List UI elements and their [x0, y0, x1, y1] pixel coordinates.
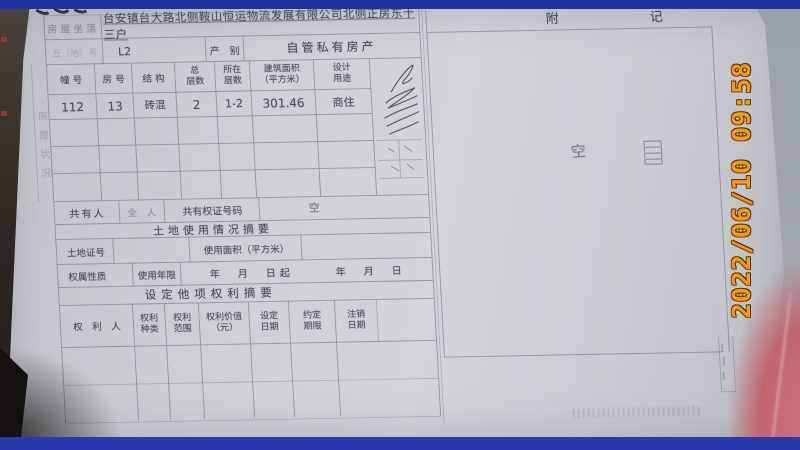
rights-header-cancel-date: 注销 日期	[334, 301, 378, 340]
col-header-room-no: 房 号	[94, 64, 133, 93]
land-area-label: 使用面积（平方米）	[191, 237, 302, 260]
notes-handwritten-mark: 空	[565, 138, 591, 164]
col-header-located-floor: 所在 层数	[214, 62, 251, 91]
camera-photo-frame: 房屋坐落 台安镇台大路北侧鞍山恒运物流发展有限公司北侧正房东十三户 丘（地）号 …	[0, 0, 800, 450]
box-doodle	[644, 141, 662, 164]
coowner-cert-value: 空	[297, 197, 332, 218]
property-category-label: 产 别	[205, 38, 244, 61]
coowner-middle-text: 全 人	[119, 202, 165, 222]
land-cert-label: 土地证号	[58, 241, 114, 263]
land-term-label: 使用年限	[132, 264, 181, 284]
handwriting-scribble	[382, 65, 421, 134]
location-label: 房屋坐落	[46, 16, 101, 39]
col-header-designed-use: 设计 用途	[313, 60, 371, 89]
rights-header-set-date: 设定 日期	[248, 303, 290, 342]
rights-header-type: 权利 种类	[132, 306, 166, 345]
floor-area-value: 301.46	[251, 91, 316, 115]
property-category-value: 自管私有房产	[245, 34, 418, 60]
camera-timestamp: 2022/06/10 09:58	[726, 59, 756, 321]
plot-number-value: L2	[104, 40, 145, 63]
rights-header-agreed-term: 约定 期限	[288, 302, 336, 341]
designed-use-value: 商住	[315, 90, 372, 114]
located-floor-value: 1-2	[216, 92, 252, 116]
col-header-floor-area: 建筑面积 （平方米）	[249, 61, 315, 90]
coowner-label: 共有人	[56, 202, 119, 222]
total-floors-value: 2	[176, 93, 217, 117]
registration-form: 房屋坐落 台安镇台大路北侧鞍山恒运物流发展有限公司北侧正房东十三户 丘（地）号 …	[0, 0, 800, 450]
col-header-total-floors: 总 层数	[174, 63, 216, 92]
land-nature-label: 权属性质	[59, 265, 115, 285]
room-no-value: 13	[96, 94, 134, 118]
rights-header-holder: 权 利 人	[59, 306, 134, 345]
coowner-cert-label: 共有权证号码	[165, 200, 260, 221]
video-frame-top-bar	[0, 0, 800, 9]
location-value: 台安镇台大路北侧鞍山恒运物流发展有限公司北侧正房东十三户	[103, 9, 418, 38]
rights-header-scope: 权利 范围	[164, 305, 200, 344]
rights-header-value: 权利价值 （元）	[198, 304, 250, 343]
col-header-structure: 结 构	[131, 63, 176, 92]
plot-number-label: 丘（地）号	[47, 41, 102, 64]
col-header-building-no: 幢 号	[46, 65, 96, 94]
structure-value: 砖混	[133, 93, 177, 117]
video-frame-bottom-bar	[0, 437, 800, 450]
building-no-value: 112	[48, 95, 97, 119]
